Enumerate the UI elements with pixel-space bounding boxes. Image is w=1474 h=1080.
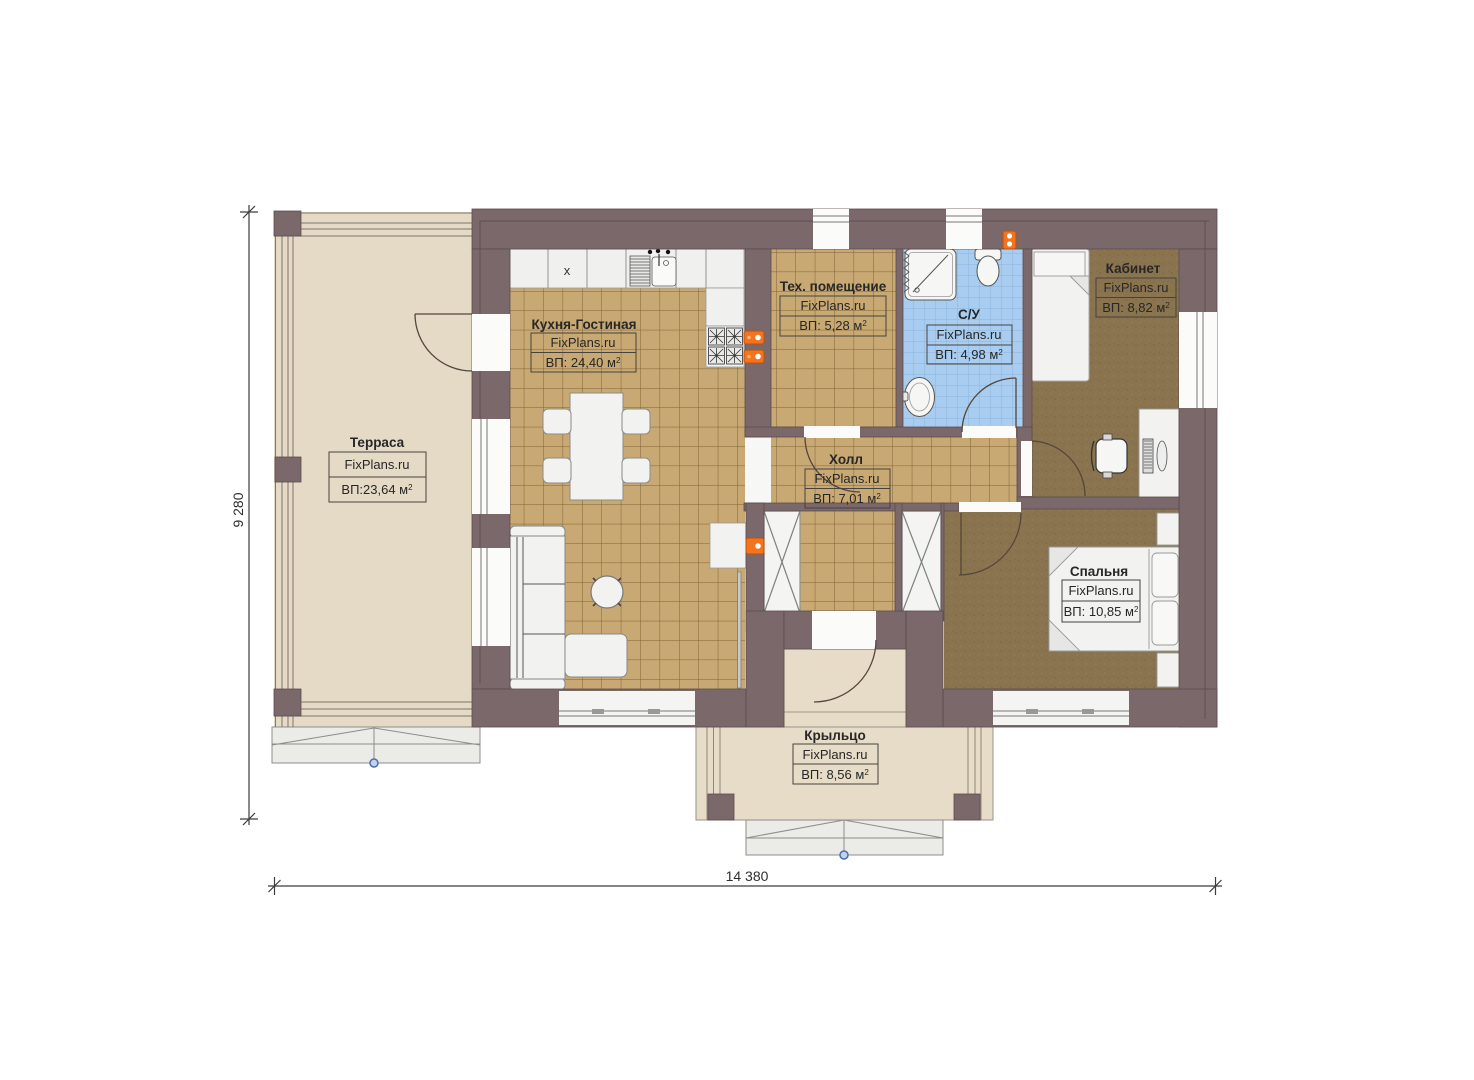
svg-text:x: x [564,263,571,278]
svg-text:FixPlans.ru: FixPlans.ru [1068,583,1133,598]
svg-text:FixPlans.ru: FixPlans.ru [550,335,615,350]
svg-text:FixPlans.ru: FixPlans.ru [800,298,865,313]
svg-text:FixPlans.ru: FixPlans.ru [802,747,867,762]
svg-text:С/У: С/У [958,307,981,322]
svg-text:ВП: 24,40 м2: ВП: 24,40 м2 [546,355,621,370]
svg-text:Холл: Холл [829,452,863,467]
svg-text:ВП:23,64 м2: ВП:23,64 м2 [341,482,413,497]
svg-text:Кухня-Гостиная: Кухня-Гостиная [532,317,637,332]
svg-text:FixPlans.ru: FixPlans.ru [936,327,1001,342]
svg-text:ВП: 7,01 м2: ВП: 7,01 м2 [813,491,881,506]
svg-text:ВП: 8,56 м2: ВП: 8,56 м2 [801,767,869,782]
svg-text:Кабинет: Кабинет [1106,261,1161,276]
svg-text:14 380: 14 380 [726,868,769,884]
svg-text:Тех. помещение: Тех. помещение [780,279,887,294]
svg-text:ВП: 4,98 м2: ВП: 4,98 м2 [935,347,1003,362]
svg-text:Крыльцо: Крыльцо [804,728,865,743]
svg-text:9 280: 9 280 [230,492,246,527]
svg-text:ВП: 10,85 м2: ВП: 10,85 м2 [1064,604,1139,619]
svg-text:ВП: 8,82 м2: ВП: 8,82 м2 [1102,300,1170,315]
svg-text:FixPlans.ru: FixPlans.ru [1103,280,1168,295]
svg-text:FixPlans.ru: FixPlans.ru [344,457,409,472]
svg-text:Спальня: Спальня [1070,564,1128,579]
svg-text:FixPlans.ru: FixPlans.ru [814,471,879,486]
svg-text:ВП: 5,28 м2: ВП: 5,28 м2 [799,318,867,333]
svg-text:Терраса: Терраса [350,435,405,450]
